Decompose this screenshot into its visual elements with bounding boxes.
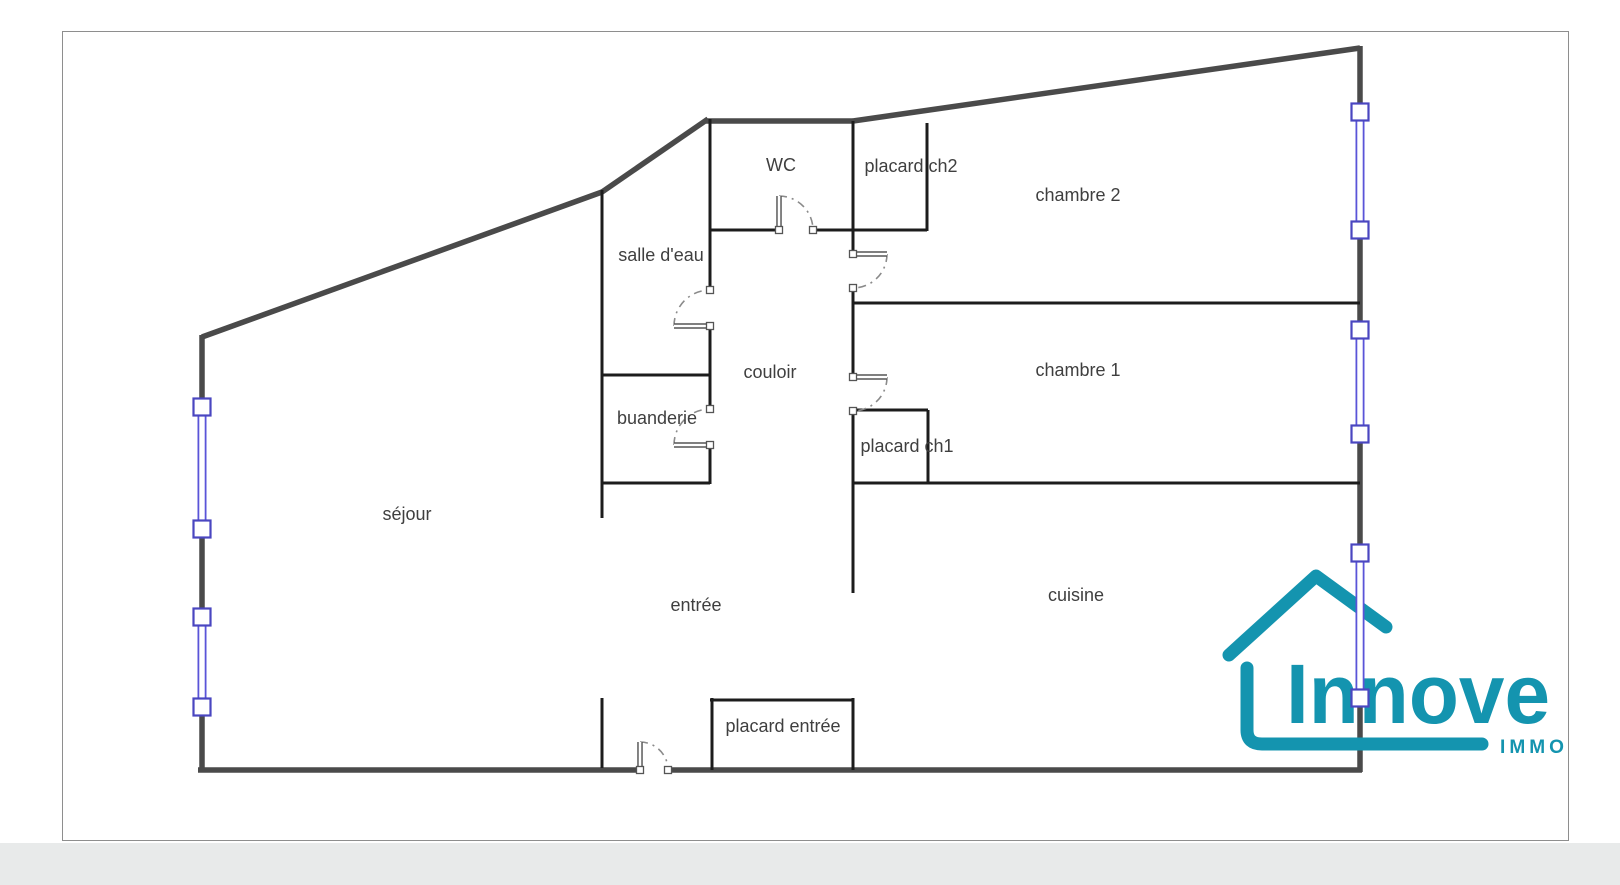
- room-label-buanderie: buanderie: [617, 408, 697, 428]
- window-post: [1352, 222, 1369, 239]
- bottom-band: [0, 843, 1620, 885]
- window-post: [1352, 322, 1369, 339]
- room-label-placard-ch1: placard ch1: [860, 436, 953, 456]
- window-post: [194, 521, 211, 538]
- room-label-sejour: séjour: [382, 504, 431, 524]
- room-label-cuisine: cuisine: [1048, 585, 1104, 605]
- door-hinge: [850, 251, 857, 258]
- room-label-chambre-1: chambre 1: [1035, 360, 1120, 380]
- room-label-placard-ch2: placard ch2: [864, 156, 957, 176]
- door-hinge: [637, 767, 644, 774]
- room-label-placard-entree: placard entrée: [725, 716, 840, 736]
- floorplan-page: WCplacard ch2chambre 2salle d'eaucouloir…: [0, 0, 1620, 885]
- logo-tagline: IMMO: [1500, 737, 1568, 758]
- window-glass: [198, 618, 205, 708]
- room-label-wc: WC: [766, 155, 796, 175]
- window-post: [1352, 104, 1369, 121]
- room-label-couloir: couloir: [743, 362, 796, 382]
- window-glass: [198, 408, 205, 530]
- window-glass: [1356, 336, 1363, 429]
- door-hinge: [707, 442, 714, 449]
- window-glass: [1356, 120, 1363, 224]
- room-label-chambre-2: chambre 2: [1035, 185, 1120, 205]
- logo-wordmark: Innove: [1286, 647, 1550, 741]
- floorplan-svg: WCplacard ch2chambre 2salle d'eaucouloir…: [0, 0, 1620, 885]
- door-hinge: [707, 287, 714, 294]
- door-hinge: [707, 406, 714, 413]
- window-post: [194, 609, 211, 626]
- window-post: [194, 399, 211, 416]
- window-post: [1352, 690, 1369, 707]
- window-post: [1352, 426, 1369, 443]
- door-hinge: [850, 374, 857, 381]
- door-hinge: [707, 323, 714, 330]
- window-post: [1352, 545, 1369, 562]
- door-hinge: [665, 767, 672, 774]
- room-label-salle-deau: salle d'eau: [618, 245, 704, 265]
- door-hinge: [776, 227, 783, 234]
- window-post: [194, 699, 211, 716]
- room-label-entree: entrée: [670, 595, 721, 615]
- door-hinge: [850, 285, 857, 292]
- door-hinge: [850, 408, 857, 415]
- window-glass: [1356, 560, 1363, 692]
- door-hinge: [810, 227, 817, 234]
